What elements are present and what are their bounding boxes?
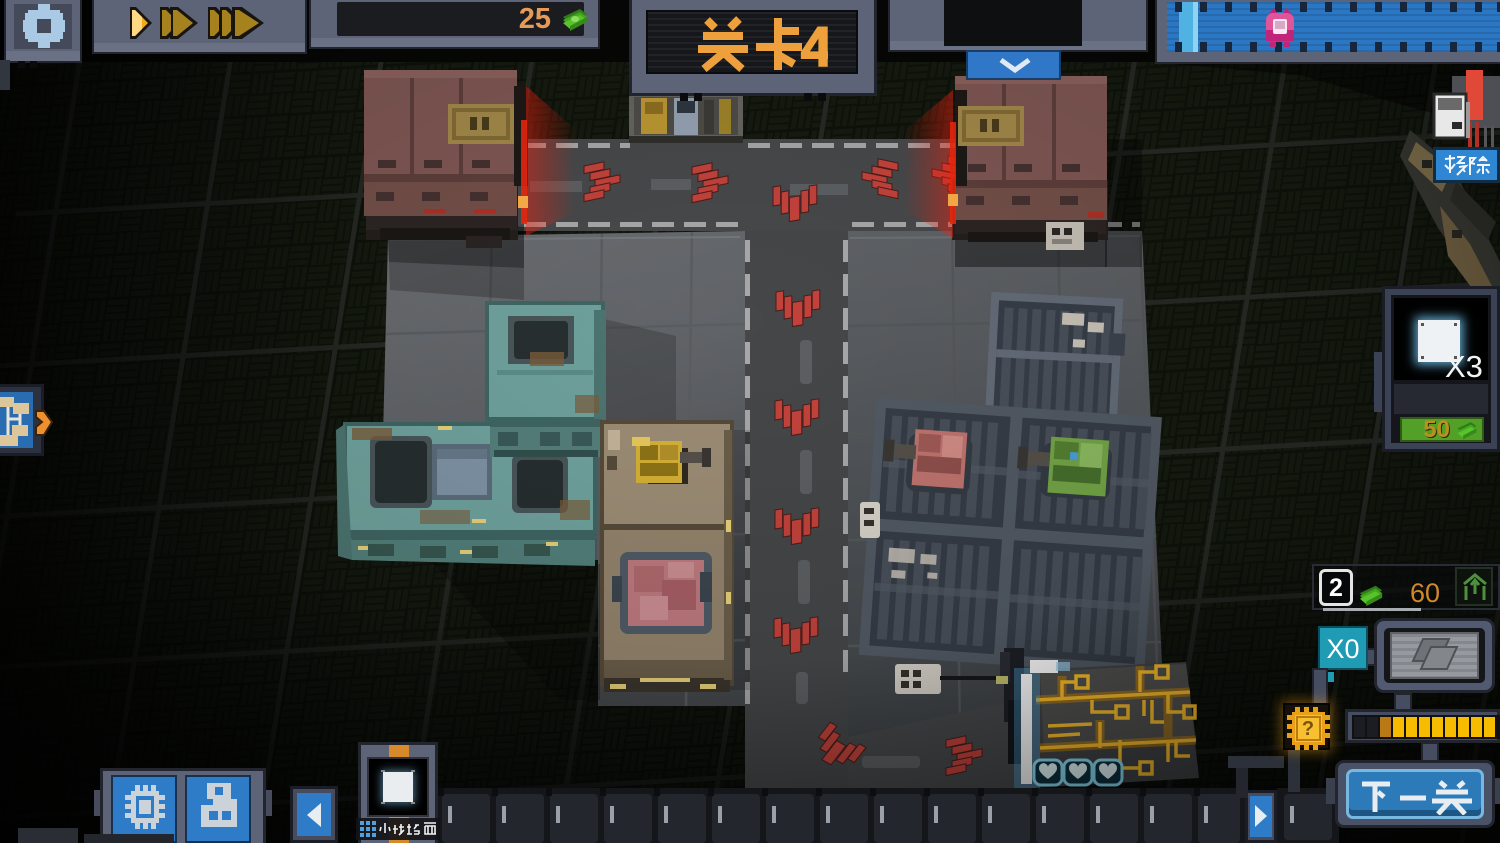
svg-text:?: ?: [1302, 718, 1314, 740]
svg-text:4: 4: [801, 15, 828, 72]
